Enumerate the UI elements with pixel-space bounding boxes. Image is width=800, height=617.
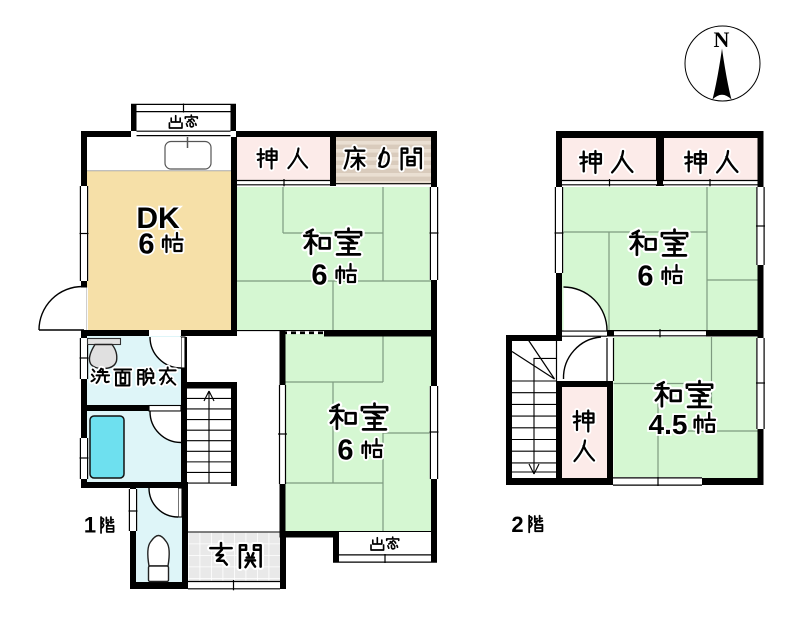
svg-text:1: 1	[84, 513, 96, 538]
svg-text:2: 2	[511, 512, 523, 537]
svg-text:6: 6	[337, 435, 353, 467]
svg-text:6: 6	[311, 260, 327, 292]
svg-text:6: 6	[138, 229, 154, 261]
svg-text:N: N	[714, 27, 730, 52]
svg-text:6: 6	[637, 261, 653, 293]
svg-text:4.5: 4.5	[649, 409, 688, 440]
